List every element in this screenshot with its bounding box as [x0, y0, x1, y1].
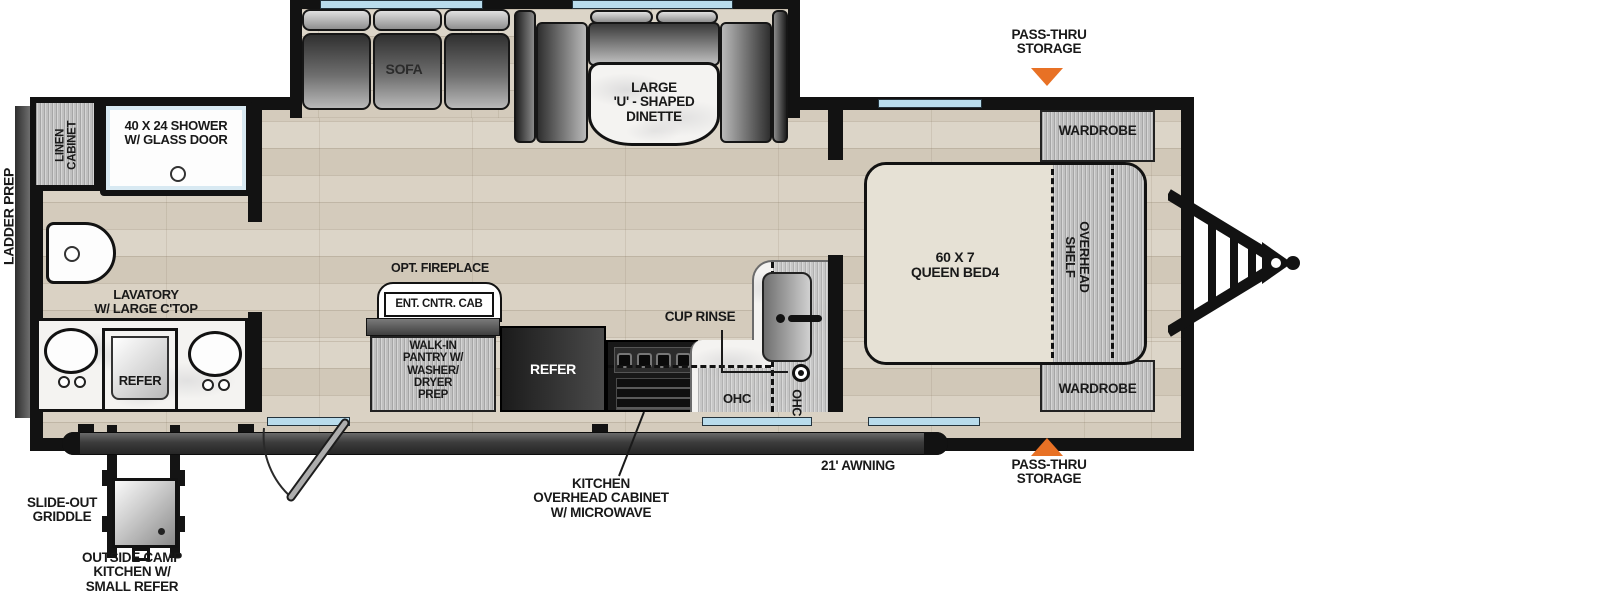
faucet-dot: [202, 379, 214, 391]
faucet-dot: [74, 376, 86, 388]
bed-dash: [1051, 169, 1054, 358]
bed-dash: [1111, 169, 1114, 358]
toilet: [46, 222, 116, 284]
kitchen-overhead-cabinet-label: KITCHEN OVERHEAD CABINET W/ MICROWAVE: [521, 477, 681, 520]
slide-out-griddle: [112, 478, 178, 548]
pantry-label: WALK-IN PANTRY W/ WASHER/ DRYER PREP: [372, 340, 494, 401]
dinette-headrest: [590, 10, 653, 24]
dinette-bench-top: [588, 22, 720, 66]
sofa-cushion: [302, 33, 371, 110]
slideout-window-sofa: [320, 0, 483, 9]
linen-cabinet-label: LINEN CABINET: [55, 102, 80, 188]
ohc-label: OHC: [712, 392, 762, 406]
awning-label: 21' AWNING: [798, 459, 918, 473]
ohc-vertical-label: OHC: [789, 383, 802, 423]
bathroom-refer-label: REFER: [119, 374, 162, 388]
rail-notch: [180, 516, 185, 532]
pass-thru-arrow-down-icon: [1031, 68, 1063, 86]
faucet-dot: [58, 376, 70, 388]
faucet-dot: [218, 379, 230, 391]
shower-drain: [170, 166, 186, 182]
dinette-bench-left: [536, 22, 588, 143]
sofa-cushion: [444, 33, 510, 110]
dinette-label: LARGE 'U' - SHAPED DINETTE: [584, 81, 724, 124]
awning-end-cap: [924, 432, 948, 455]
dinette-bench-right-back: [772, 10, 788, 143]
ent-center-cabinet-label: ENT. CNTR. CAB: [395, 298, 482, 310]
toilet-flush: [64, 246, 80, 262]
pass-thru-storage-bottom-label: PASS-THRU STORAGE: [979, 458, 1119, 487]
pantry-counter-bar: [366, 318, 500, 336]
faucet-icon: [776, 314, 785, 323]
window: [868, 417, 980, 426]
burner-row: [614, 347, 694, 373]
hitch-a-frame: [1168, 186, 1300, 340]
bathroom-wall: [248, 110, 262, 222]
dinette-bench-right: [720, 22, 772, 143]
ladder-prep-label: LADDER PREP: [2, 156, 17, 276]
opt-fireplace-label: OPT. FIREPLACE: [375, 262, 505, 275]
faucet-icon: [788, 315, 822, 322]
kitchen-refer: REFER: [500, 326, 606, 412]
bathroom-refer-body: [111, 336, 169, 400]
stove: [606, 340, 698, 412]
dinette-bench-left-back: [514, 10, 536, 143]
kitchen-refer-label: REFER: [530, 362, 576, 377]
outside-camp-kitchen-label: OUTSIDE CAMP KITCHEN W/ SMALL REFER: [62, 551, 202, 594]
cup-rinse-label: CUP RINSE: [650, 310, 750, 324]
lavatory-sink: [188, 331, 242, 377]
galley-wall: [828, 255, 843, 412]
bathroom-refer: REFER: [102, 328, 178, 412]
overhead-cabinet-dash: [608, 365, 771, 368]
sofa-backrest: [373, 9, 442, 31]
sofa-backrest: [302, 9, 371, 31]
griddle-knob: [158, 528, 165, 535]
ent-center-cabinet: ENT. CNTR. CAB: [384, 292, 494, 317]
rail-notch: [102, 470, 107, 486]
rear-bumper: [15, 106, 30, 418]
wardrobe-rear-label: WARDROBE: [1042, 124, 1153, 138]
slideout-window-dinette: [572, 0, 733, 9]
oven-door: [616, 378, 692, 410]
lavatory-sink: [44, 328, 98, 374]
sofa-label: SOFA: [364, 62, 444, 77]
lavatory-label: LAVATORY W/ LARGE C'TOP: [66, 288, 226, 316]
entry-door-window: [267, 417, 350, 426]
pass-thru-storage-top-label: PASS-THRU STORAGE: [979, 28, 1119, 57]
awning-bar: [62, 432, 948, 455]
overhead-shelf-label: OVERHEAD SHELF: [1063, 202, 1091, 312]
awning-end-cap: [62, 432, 80, 455]
bathroom-wall: [248, 312, 262, 412]
rail-notch: [180, 470, 185, 486]
floorplan-canvas: LADDER PREP SOFA LARGE 'U' - SHAPED DINE…: [0, 0, 1600, 603]
slide-out-griddle-label: SLIDE-OUT GRIDDLE: [12, 496, 112, 525]
galley-wall: [828, 110, 843, 160]
dinette-headrest: [656, 10, 718, 24]
sofa-backrest: [444, 9, 510, 31]
window: [878, 99, 982, 108]
shower-label: 40 X 24 SHOWER W/ GLASS DOOR: [106, 119, 246, 147]
queen-bed-label: 60 X 7 QUEEN BED4: [880, 250, 1030, 280]
cup-rinse-icon-dot: [798, 370, 804, 376]
pass-thru-arrow-up-icon: [1031, 438, 1063, 456]
wardrobe-front-label: WARDROBE: [1042, 382, 1153, 396]
